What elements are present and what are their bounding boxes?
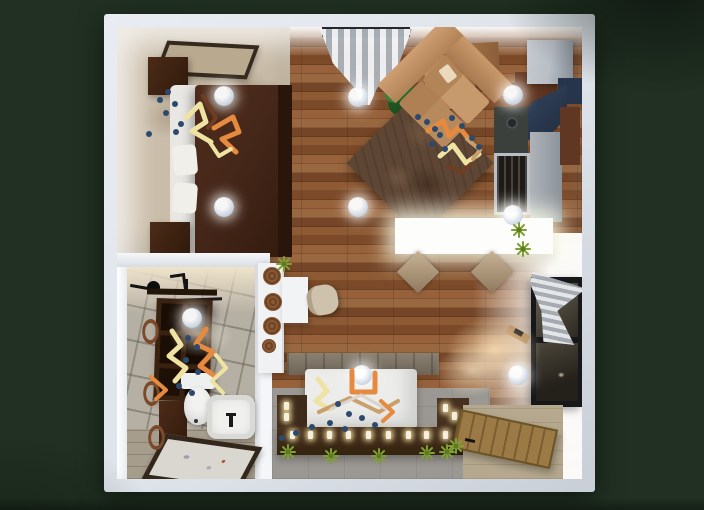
ceiling-light [508,365,528,385]
cubby-cell [158,368,179,396]
candle [284,402,289,410]
candle [424,431,429,439]
desk-chair [305,283,341,318]
bed-duvet [195,85,283,257]
apartment-outer-walls [104,14,595,492]
candle [290,431,295,439]
window-pane [536,343,578,401]
cubby-cell [160,336,181,364]
candle [386,431,391,439]
dark-counter [494,107,528,155]
wall-shelf-plank [147,288,217,295]
desk [282,277,308,323]
candle [452,412,457,420]
bed-headboard [278,85,292,257]
round-basket [263,317,281,335]
nightstand [150,222,190,255]
lower-wood-cabinet [560,107,580,165]
ceiling-light [348,87,368,107]
tub-faucet-handle [226,413,236,416]
bathroom-top-wall [117,253,270,267]
candle [366,431,371,439]
round-basket [264,293,282,311]
candle [327,431,332,439]
ceiling-light [214,197,234,217]
kitchen-sink [506,117,518,129]
ceiling-light [348,197,368,217]
round-basket [262,339,276,353]
apartment-interior [117,27,582,479]
cubby-cell [185,336,206,364]
toilet-drain [194,419,198,423]
candle [346,431,351,439]
island-table [395,218,553,254]
ceiling-light [503,85,523,105]
ceiling-light [182,308,202,328]
ceiling-light [214,86,234,106]
pillow [172,182,198,214]
pillow [172,144,199,176]
candle [443,404,448,412]
round-basket [263,267,281,285]
bathroom-left-wall [117,267,127,479]
tub-faucet [229,415,233,427]
candle [406,431,411,439]
ceiling-light [352,365,372,385]
cubby-cell [161,303,182,331]
dining-chair [397,251,439,293]
lower-steel-cabinet [530,132,562,222]
candle [284,413,289,421]
candle [443,431,448,439]
candle-ledge [277,427,469,455]
render-viewport[interactable] [0,0,704,510]
candle [308,431,313,439]
ceiling-light [503,205,523,225]
